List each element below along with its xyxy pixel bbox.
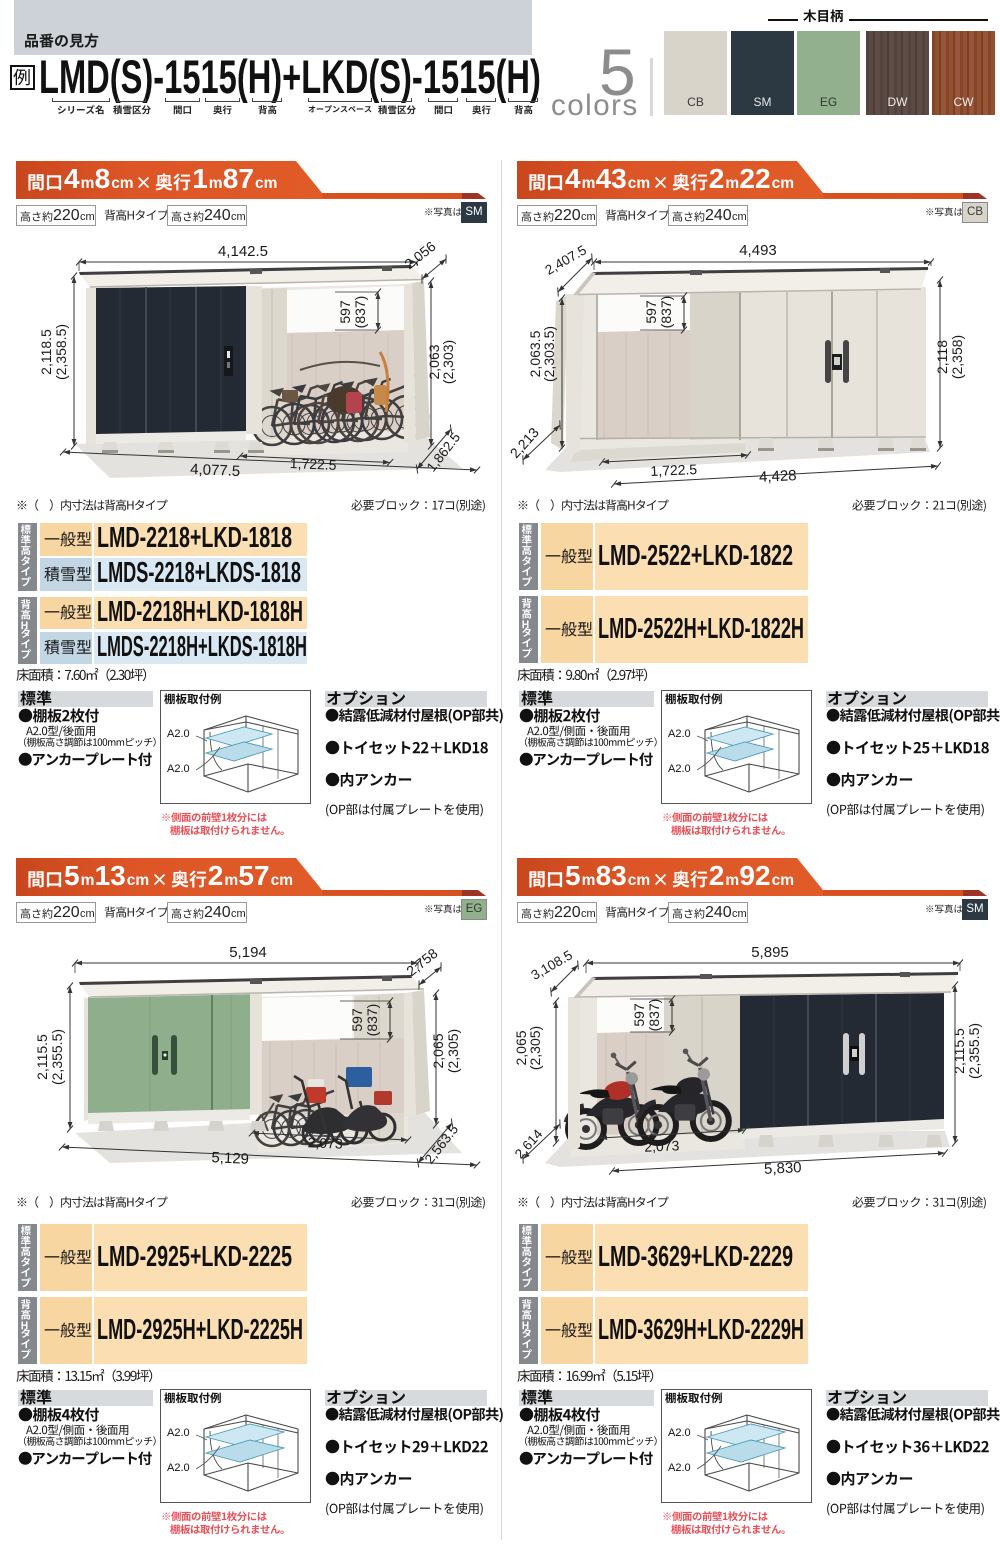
svg-text:2,073: 2,073: [644, 1137, 680, 1155]
svg-text:2,407.5: 2,407.5: [542, 242, 589, 278]
svg-text:4,077.5: 4,077.5: [190, 461, 241, 480]
svg-text:(2,305): (2,305): [445, 1029, 461, 1073]
svg-text:(2,355.5): (2,355.5): [966, 1023, 982, 1079]
svg-text:597: 597: [631, 1003, 647, 1027]
svg-text:(2,303): (2,303): [440, 340, 456, 384]
svg-text:597: 597: [337, 300, 353, 324]
svg-text:2,758: 2,758: [403, 945, 441, 979]
svg-text:(837): (837): [646, 999, 662, 1032]
svg-text:1,722.5: 1,722.5: [650, 461, 698, 479]
svg-text:(837): (837): [364, 1004, 380, 1037]
svg-text:5,830: 5,830: [764, 1159, 802, 1178]
svg-text:4,428: 4,428: [759, 467, 797, 486]
svg-text:5,194: 5,194: [229, 944, 267, 961]
svg-text:(2,358.5): (2,358.5): [53, 324, 69, 380]
svg-text:(2,355.5): (2,355.5): [49, 1029, 65, 1085]
svg-text:597: 597: [643, 300, 659, 324]
svg-text:1,722.5: 1,722.5: [290, 455, 338, 473]
svg-text:3,108.5: 3,108.5: [528, 947, 575, 983]
svg-text:(837): (837): [352, 296, 368, 329]
svg-text:2,118: 2,118: [934, 340, 950, 374]
svg-text:(2,305): (2,305): [527, 1026, 543, 1070]
svg-text:5,895: 5,895: [751, 944, 789, 961]
svg-text:(837): (837): [658, 296, 674, 329]
svg-text:2,056: 2,056: [401, 238, 439, 272]
svg-text:(2,303.5): (2,303.5): [541, 326, 557, 382]
svg-text:4,142.5: 4,142.5: [218, 243, 268, 260]
svg-text:2,065: 2,065: [430, 1033, 446, 1068]
svg-text:5,129: 5,129: [211, 1149, 249, 1168]
svg-text:2,073: 2,073: [307, 1134, 343, 1152]
svg-text:2,213: 2,213: [507, 424, 542, 461]
svg-text:597: 597: [349, 1008, 365, 1032]
svg-text:(2,358): (2,358): [949, 335, 965, 379]
svg-text:4,493: 4,493: [739, 242, 777, 259]
svg-text:2,118.5: 2,118.5: [38, 329, 54, 375]
svg-text:2,115.5: 2,115.5: [951, 1028, 967, 1074]
svg-text:2,115.5: 2,115.5: [34, 1034, 50, 1080]
